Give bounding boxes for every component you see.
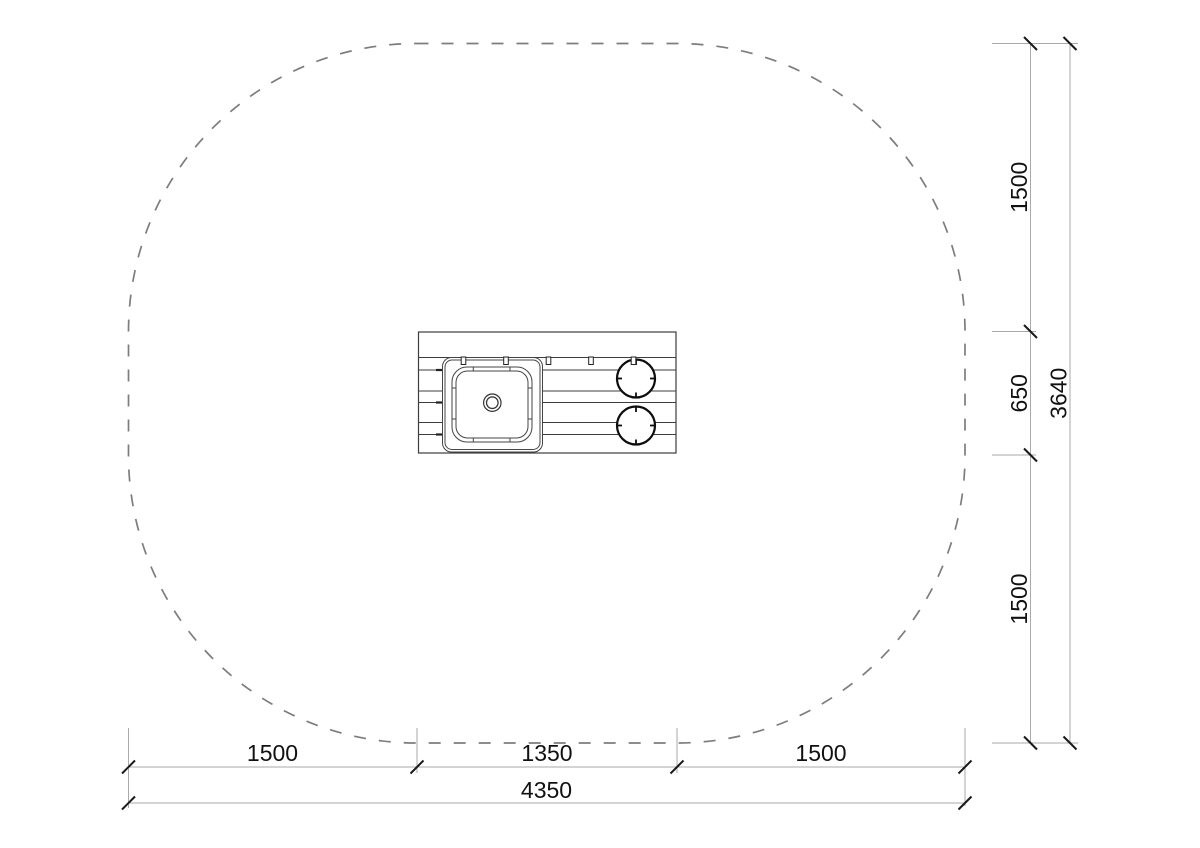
dim-right-total-label: 3640 bbox=[1046, 368, 1072, 419]
dim-right-middle-label: 650 bbox=[1006, 374, 1032, 412]
hob-circle bbox=[617, 360, 655, 398]
technical-drawing-canvas: 1500 1350 1500 4350 1500 650 1500 3640 bbox=[0, 0, 1200, 848]
dim-right-bottom-label: 1500 bbox=[1006, 573, 1032, 624]
mounting-tab bbox=[546, 357, 551, 365]
dim-bottom-left-label: 1500 bbox=[247, 740, 298, 766]
dim-bottom-middle-label: 1350 bbox=[521, 740, 572, 766]
mounting-tab bbox=[504, 357, 509, 365]
sink bbox=[443, 358, 543, 453]
kitchen-unit bbox=[419, 332, 677, 453]
plan-view-drawing: 1500 1350 1500 4350 1500 650 1500 3640 bbox=[0, 0, 1200, 848]
hob-circle bbox=[617, 407, 655, 445]
dim-bottom-total-label: 4350 bbox=[521, 777, 572, 803]
mounting-tab bbox=[589, 357, 594, 365]
dim-right-top-label: 1500 bbox=[1006, 162, 1032, 213]
dim-bottom-right-label: 1500 bbox=[795, 740, 846, 766]
right-dimension-group: 1500 650 1500 3640 bbox=[992, 37, 1078, 750]
mounting-tab bbox=[461, 357, 466, 365]
bottom-dimension-group: 1500 1350 1500 4350 bbox=[122, 728, 972, 810]
hob-burner-1 bbox=[617, 360, 655, 398]
mounting-tab bbox=[631, 357, 636, 365]
hob-burner-2 bbox=[617, 407, 655, 445]
